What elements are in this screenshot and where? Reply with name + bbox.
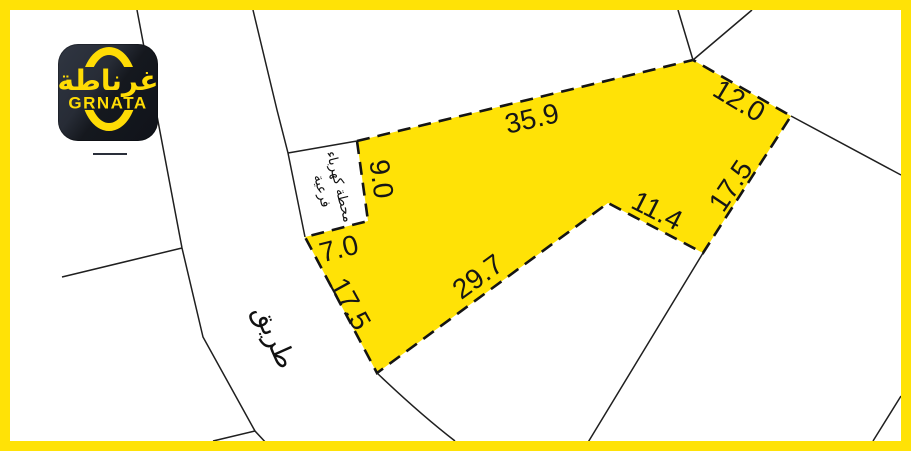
plot-map-canvas: 35.9 12.0 17.5 11.4 29.7 17.5 7.0 9.0 مح…: [0, 0, 911, 451]
dimension-label-9-0: 9.0: [362, 157, 399, 200]
logo-arabic-text: غرناطة: [58, 67, 159, 95]
grnata-logo: غرناطة GRNATA: [58, 44, 158, 141]
logo-latin-text: GRNATA: [68, 95, 147, 112]
logo-underline: [93, 153, 127, 155]
